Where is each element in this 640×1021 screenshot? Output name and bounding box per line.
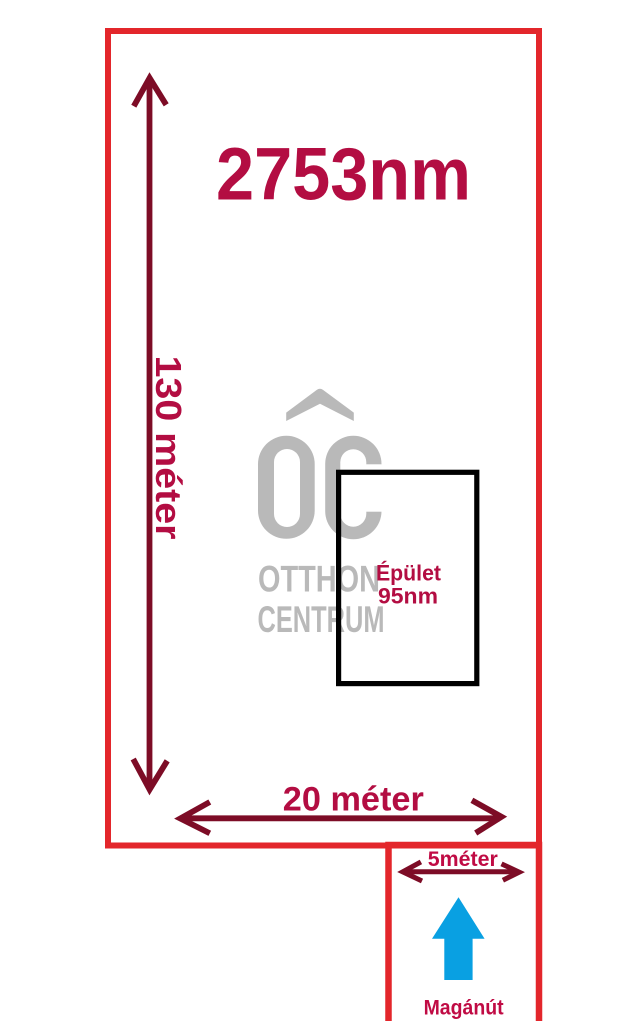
svg-text:Épület: Épület [376,561,442,586]
svg-text:95nm: 95nm [378,583,438,608]
svg-text:130 méter: 130 méter [148,356,189,540]
svg-text:CENTRUM: CENTRUM [258,599,385,640]
svg-text:5méter: 5méter [428,848,498,871]
svg-text:20 méter: 20 méter [283,781,424,819]
svg-text:OTTHON: OTTHON [258,559,380,600]
svg-text:Magánút: Magánút [424,997,504,1020]
svg-text:2753nm: 2753nm [216,133,471,216]
